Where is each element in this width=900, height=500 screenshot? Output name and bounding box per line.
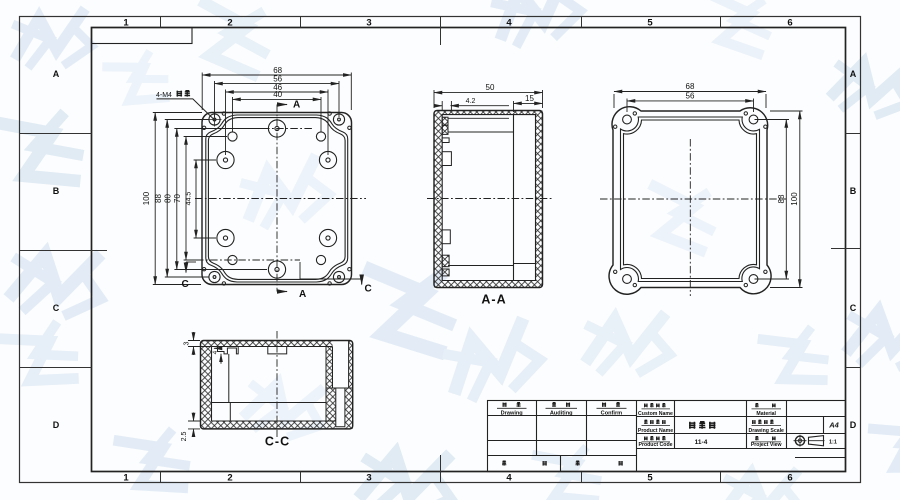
svg-text:C-C: C-C: [265, 435, 290, 449]
svg-text:A: A: [53, 69, 60, 79]
svg-text:Product Code: Product Code: [638, 442, 672, 448]
svg-text:Auditing: Auditing: [550, 410, 573, 416]
svg-text:B: B: [53, 186, 60, 196]
svg-text:Confirm: Confirm: [601, 410, 622, 416]
svg-text:3: 3: [184, 341, 191, 345]
svg-text:A: A: [850, 69, 857, 79]
svg-text:70: 70: [173, 194, 182, 203]
svg-text:C: C: [365, 284, 372, 295]
svg-text:5: 5: [647, 17, 653, 28]
svg-text:4.2: 4.2: [466, 98, 476, 105]
svg-text:56: 56: [686, 91, 695, 100]
svg-text:2.5: 2.5: [181, 432, 188, 442]
svg-text:Project View: Project View: [751, 442, 783, 448]
svg-text:B: B: [850, 186, 857, 196]
svg-text:Product Name: Product Name: [638, 428, 673, 434]
svg-text:Drawing Scale: Drawing Scale: [748, 428, 784, 434]
svg-text:D: D: [53, 420, 60, 430]
svg-text:A4: A4: [828, 421, 839, 430]
svg-text:C: C: [850, 303, 857, 313]
svg-text:A: A: [299, 289, 306, 300]
svg-text:Drawing: Drawing: [501, 410, 524, 416]
svg-text:4-M4: 4-M4: [156, 92, 172, 99]
svg-text:15: 15: [525, 94, 534, 103]
svg-text:2: 2: [227, 473, 232, 484]
svg-text:100: 100: [790, 192, 799, 206]
svg-text:Material: Material: [756, 411, 776, 417]
svg-text:68: 68: [686, 82, 695, 91]
svg-text:80: 80: [164, 194, 173, 203]
svg-text:A-A: A-A: [481, 293, 506, 307]
svg-text:4: 4: [506, 17, 512, 28]
svg-text:88: 88: [777, 194, 786, 203]
svg-text:3: 3: [366, 473, 371, 484]
svg-text:44.5: 44.5: [186, 192, 193, 206]
svg-text:1: 1: [123, 17, 129, 28]
svg-text:11-4: 11-4: [695, 439, 708, 446]
svg-text:6: 6: [787, 473, 792, 484]
svg-text:4: 4: [506, 473, 512, 484]
svg-text:40: 40: [273, 90, 282, 99]
svg-text:5: 5: [647, 473, 653, 484]
svg-text:3: 3: [366, 17, 371, 28]
svg-text:1: 1: [123, 473, 129, 484]
svg-text:C: C: [53, 303, 60, 313]
svg-text:50: 50: [486, 83, 495, 92]
svg-text:100: 100: [142, 191, 151, 205]
svg-text:C: C: [182, 279, 189, 290]
svg-text:6: 6: [787, 17, 792, 28]
svg-text:Custom Name: Custom Name: [638, 411, 673, 417]
svg-text:D: D: [850, 420, 857, 430]
svg-text:4: 4: [212, 350, 219, 354]
svg-text:2: 2: [227, 17, 232, 28]
svg-text:88: 88: [154, 194, 163, 203]
svg-text:A: A: [293, 100, 300, 111]
svg-text:1:1: 1:1: [829, 439, 837, 445]
